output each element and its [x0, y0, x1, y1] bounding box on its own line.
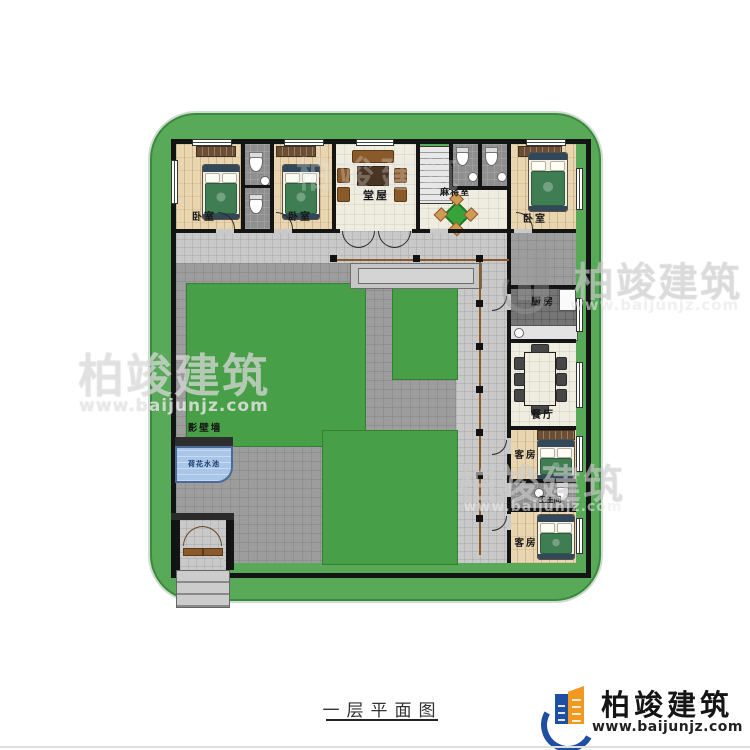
door-opening: [514, 229, 532, 233]
gate-passage: [180, 558, 224, 570]
wall: [241, 144, 245, 231]
window-icon: [356, 139, 394, 146]
wall: [509, 426, 576, 430]
wall: [478, 144, 482, 190]
wall: [416, 144, 420, 231]
column-icon: [476, 300, 483, 307]
gate-beam: [171, 513, 234, 520]
gate-steps: [176, 570, 230, 608]
screen-wall: [175, 437, 233, 446]
plan-title: 一层平面图: [310, 696, 455, 721]
wall: [176, 229, 340, 233]
window-icon: [171, 160, 178, 204]
wall: [243, 185, 272, 188]
building-outer-wall: [171, 139, 591, 578]
door-opening: [216, 229, 234, 233]
column-icon: [476, 386, 483, 393]
column-icon: [476, 515, 483, 522]
plan-title-underline: [326, 719, 438, 721]
gate-door-leaf: [183, 548, 203, 556]
screen-wall-label: 影壁墙: [176, 424, 234, 435]
lotus-pond: 荷花水池: [175, 446, 233, 483]
gate-door-leaf: [203, 548, 223, 556]
wall: [332, 144, 336, 231]
gate-post: [172, 520, 180, 570]
wall: [509, 508, 576, 512]
logo-tower-orange: [568, 686, 584, 724]
column-icon: [330, 255, 337, 262]
floor-plan-sheet: 影壁墙 荷花水池 卧室 卧室 堂屋 麻将室 卧室 厨房 餐厅 客房 卫生间 客房…: [0, 0, 750, 750]
door-opening: [507, 483, 511, 497]
wall: [509, 479, 576, 483]
window-icon: [576, 436, 583, 472]
room-label-bathroom: 卫生间: [528, 496, 572, 505]
room-label-hall: 堂屋: [334, 190, 418, 203]
window-icon: [576, 168, 583, 210]
door-opening: [430, 229, 448, 233]
column-icon: [413, 255, 420, 262]
wall: [449, 144, 453, 190]
logo-tower-blue: [555, 694, 568, 724]
window-icon: [526, 139, 566, 146]
watermark-logo-icon: [500, 248, 560, 310]
brand-website: www.baijunjz.com: [592, 719, 742, 735]
room-label-bedroom-right: 卧室: [510, 214, 560, 226]
room-label-mahjong: 麻将室: [426, 188, 484, 198]
room-label-dining: 餐厅: [524, 410, 562, 422]
room-label-guest-upper: 客房: [508, 451, 544, 462]
lotus-pond-label: 荷花水池: [177, 459, 231, 469]
column-icon: [476, 343, 483, 350]
brand-name: 柏竣建筑: [592, 682, 742, 724]
door-opening: [274, 229, 292, 233]
column-icon: [476, 472, 483, 479]
room-label-guest-lower: 客房: [508, 539, 544, 550]
room-label-bedroom-left: 卧室: [178, 212, 230, 224]
room-label-bedroom-mid: 卧室: [274, 212, 326, 224]
window-icon: [576, 518, 583, 554]
window-icon: [576, 362, 583, 408]
column-icon: [476, 429, 483, 436]
column-icon: [476, 255, 483, 262]
wall: [509, 339, 576, 343]
gate-post: [226, 520, 234, 570]
window-icon: [192, 139, 232, 146]
page-bottom-divider: [0, 746, 750, 748]
window-icon: [576, 298, 583, 332]
window-icon: [284, 139, 324, 146]
door-opening: [507, 514, 511, 530]
